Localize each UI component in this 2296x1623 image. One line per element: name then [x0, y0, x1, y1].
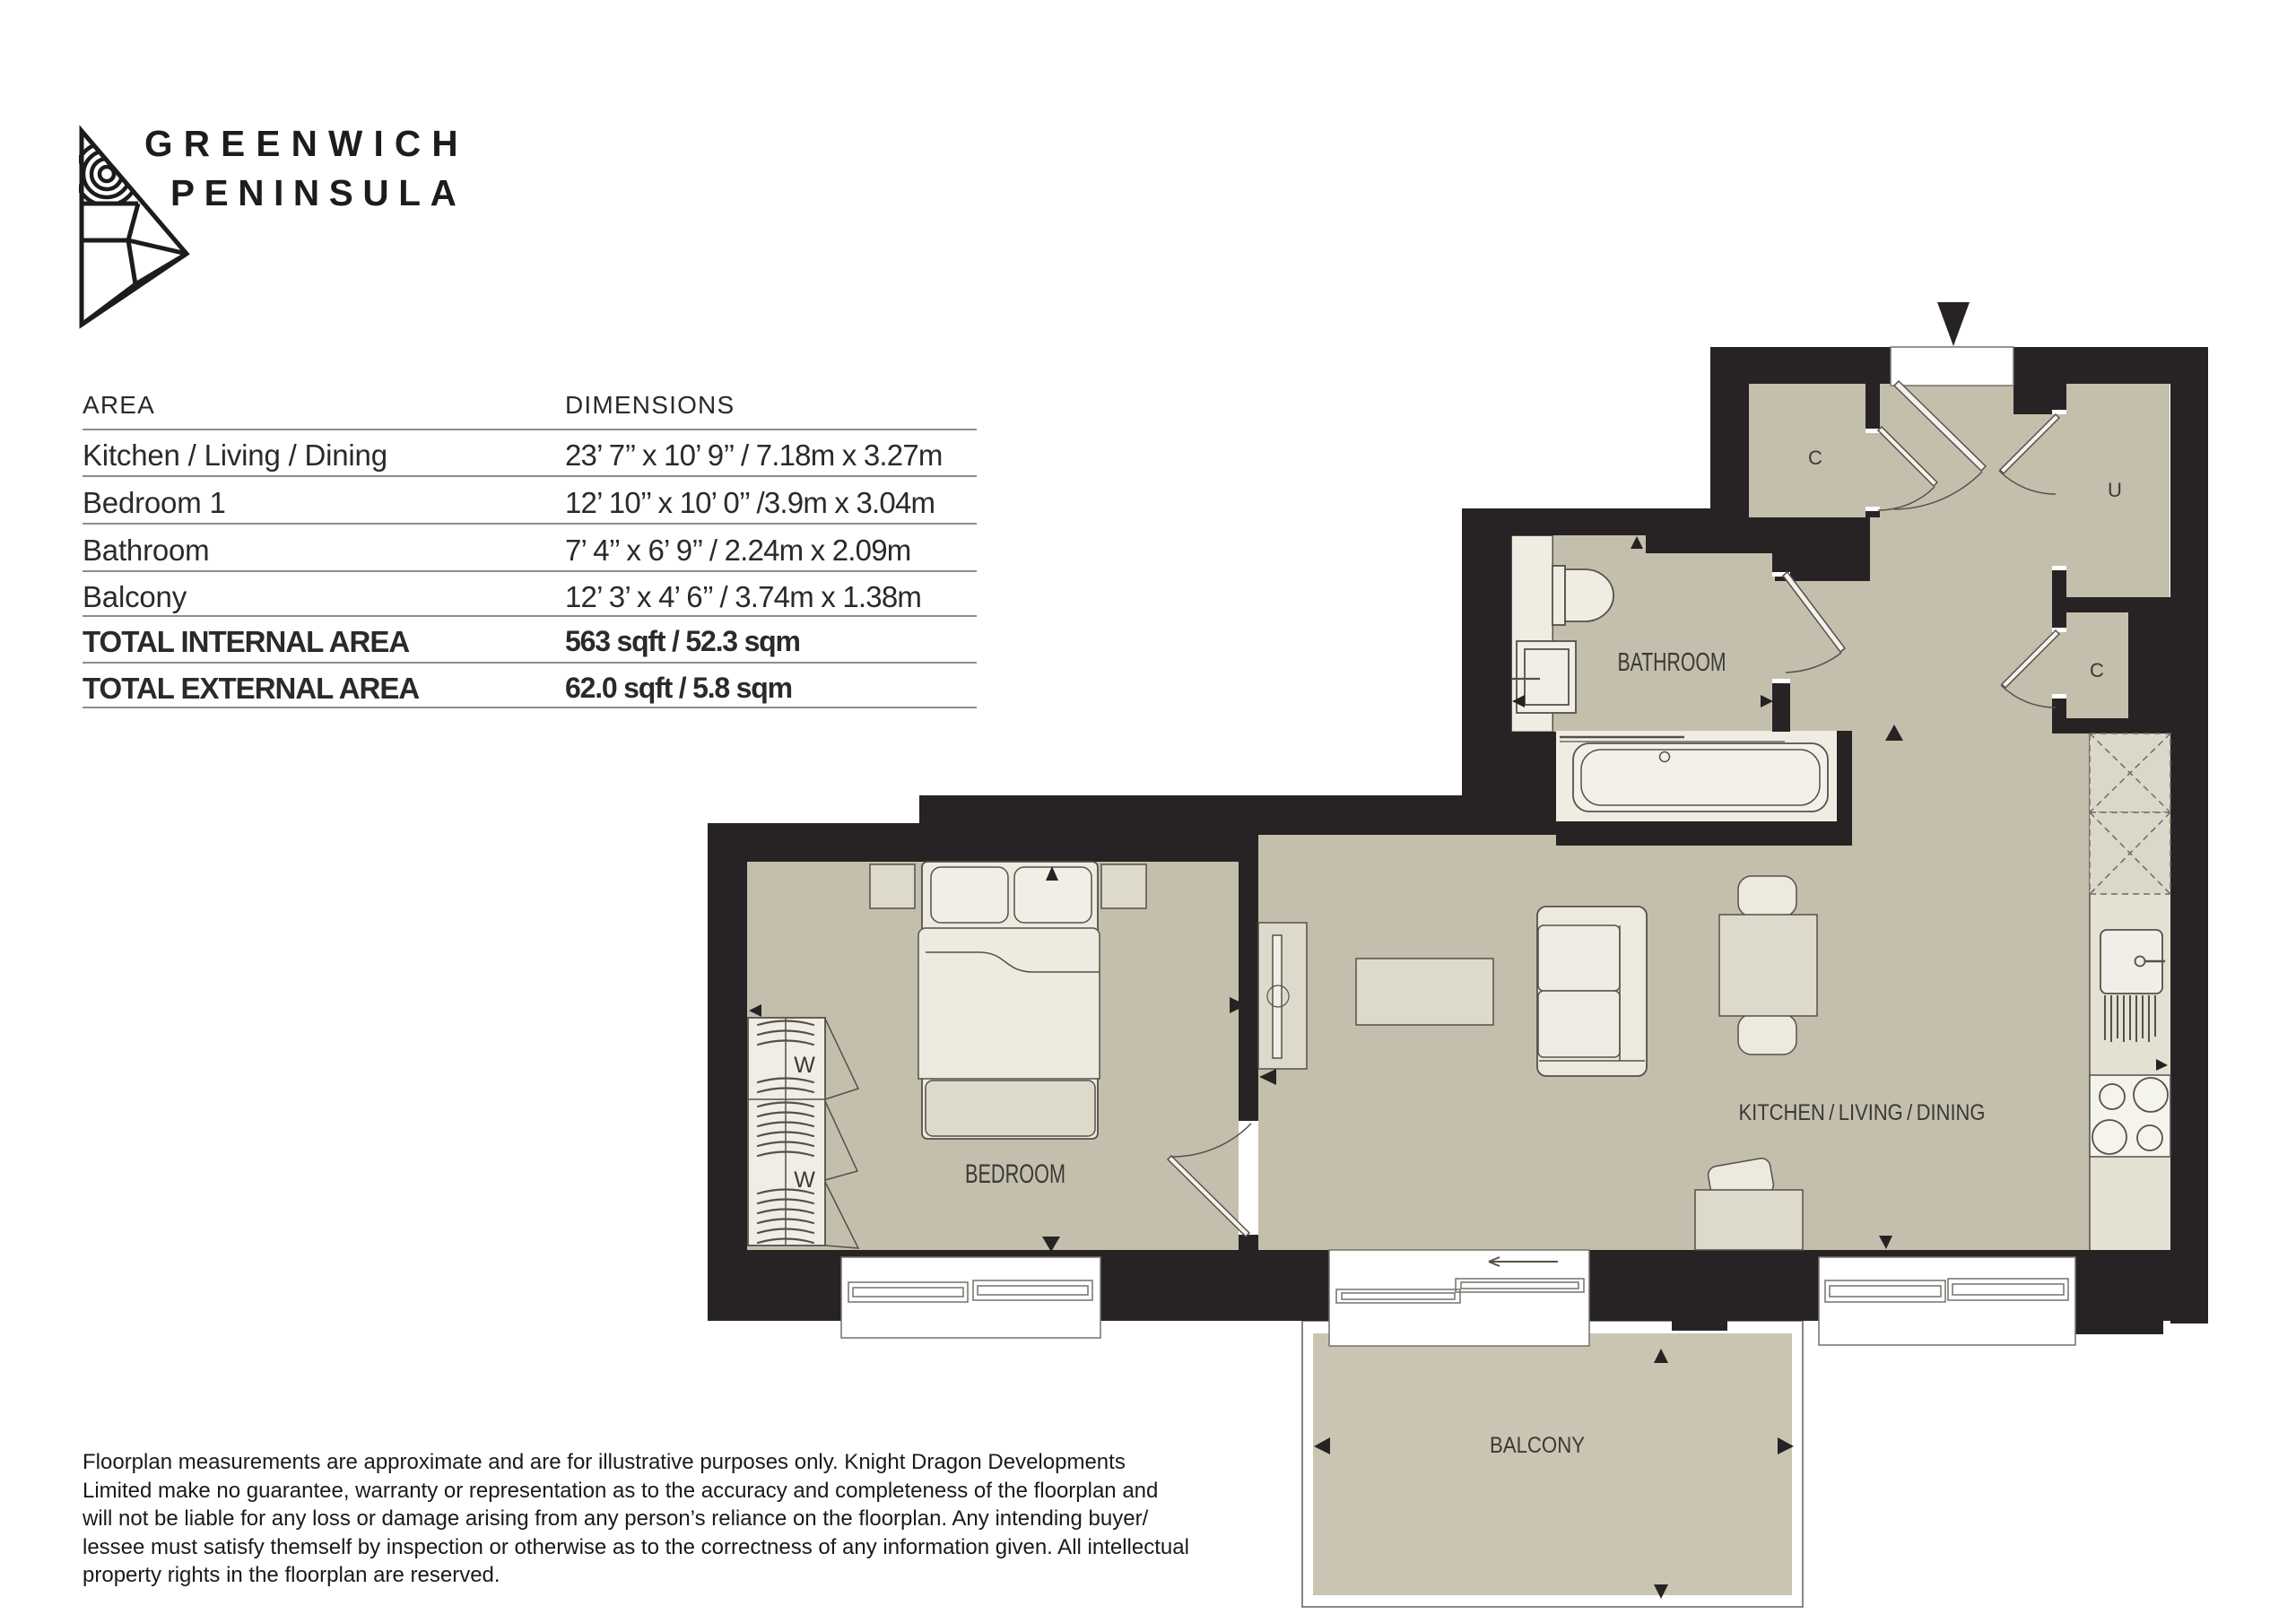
svg-text:KITCHEN / LIVING / DINING: KITCHEN / LIVING / DINING — [1739, 1100, 1986, 1125]
svg-text:BATHROOM: BATHROOM — [1618, 648, 1726, 677]
svg-text:C: C — [2090, 659, 2104, 681]
svg-text:C: C — [1808, 447, 1822, 469]
svg-text:BALCONY: BALCONY — [1490, 1433, 1585, 1458]
svg-text:W: W — [794, 1167, 815, 1193]
svg-text:U: U — [2108, 479, 2122, 501]
svg-text:W: W — [794, 1053, 815, 1078]
svg-text:BEDROOM: BEDROOM — [965, 1159, 1065, 1189]
